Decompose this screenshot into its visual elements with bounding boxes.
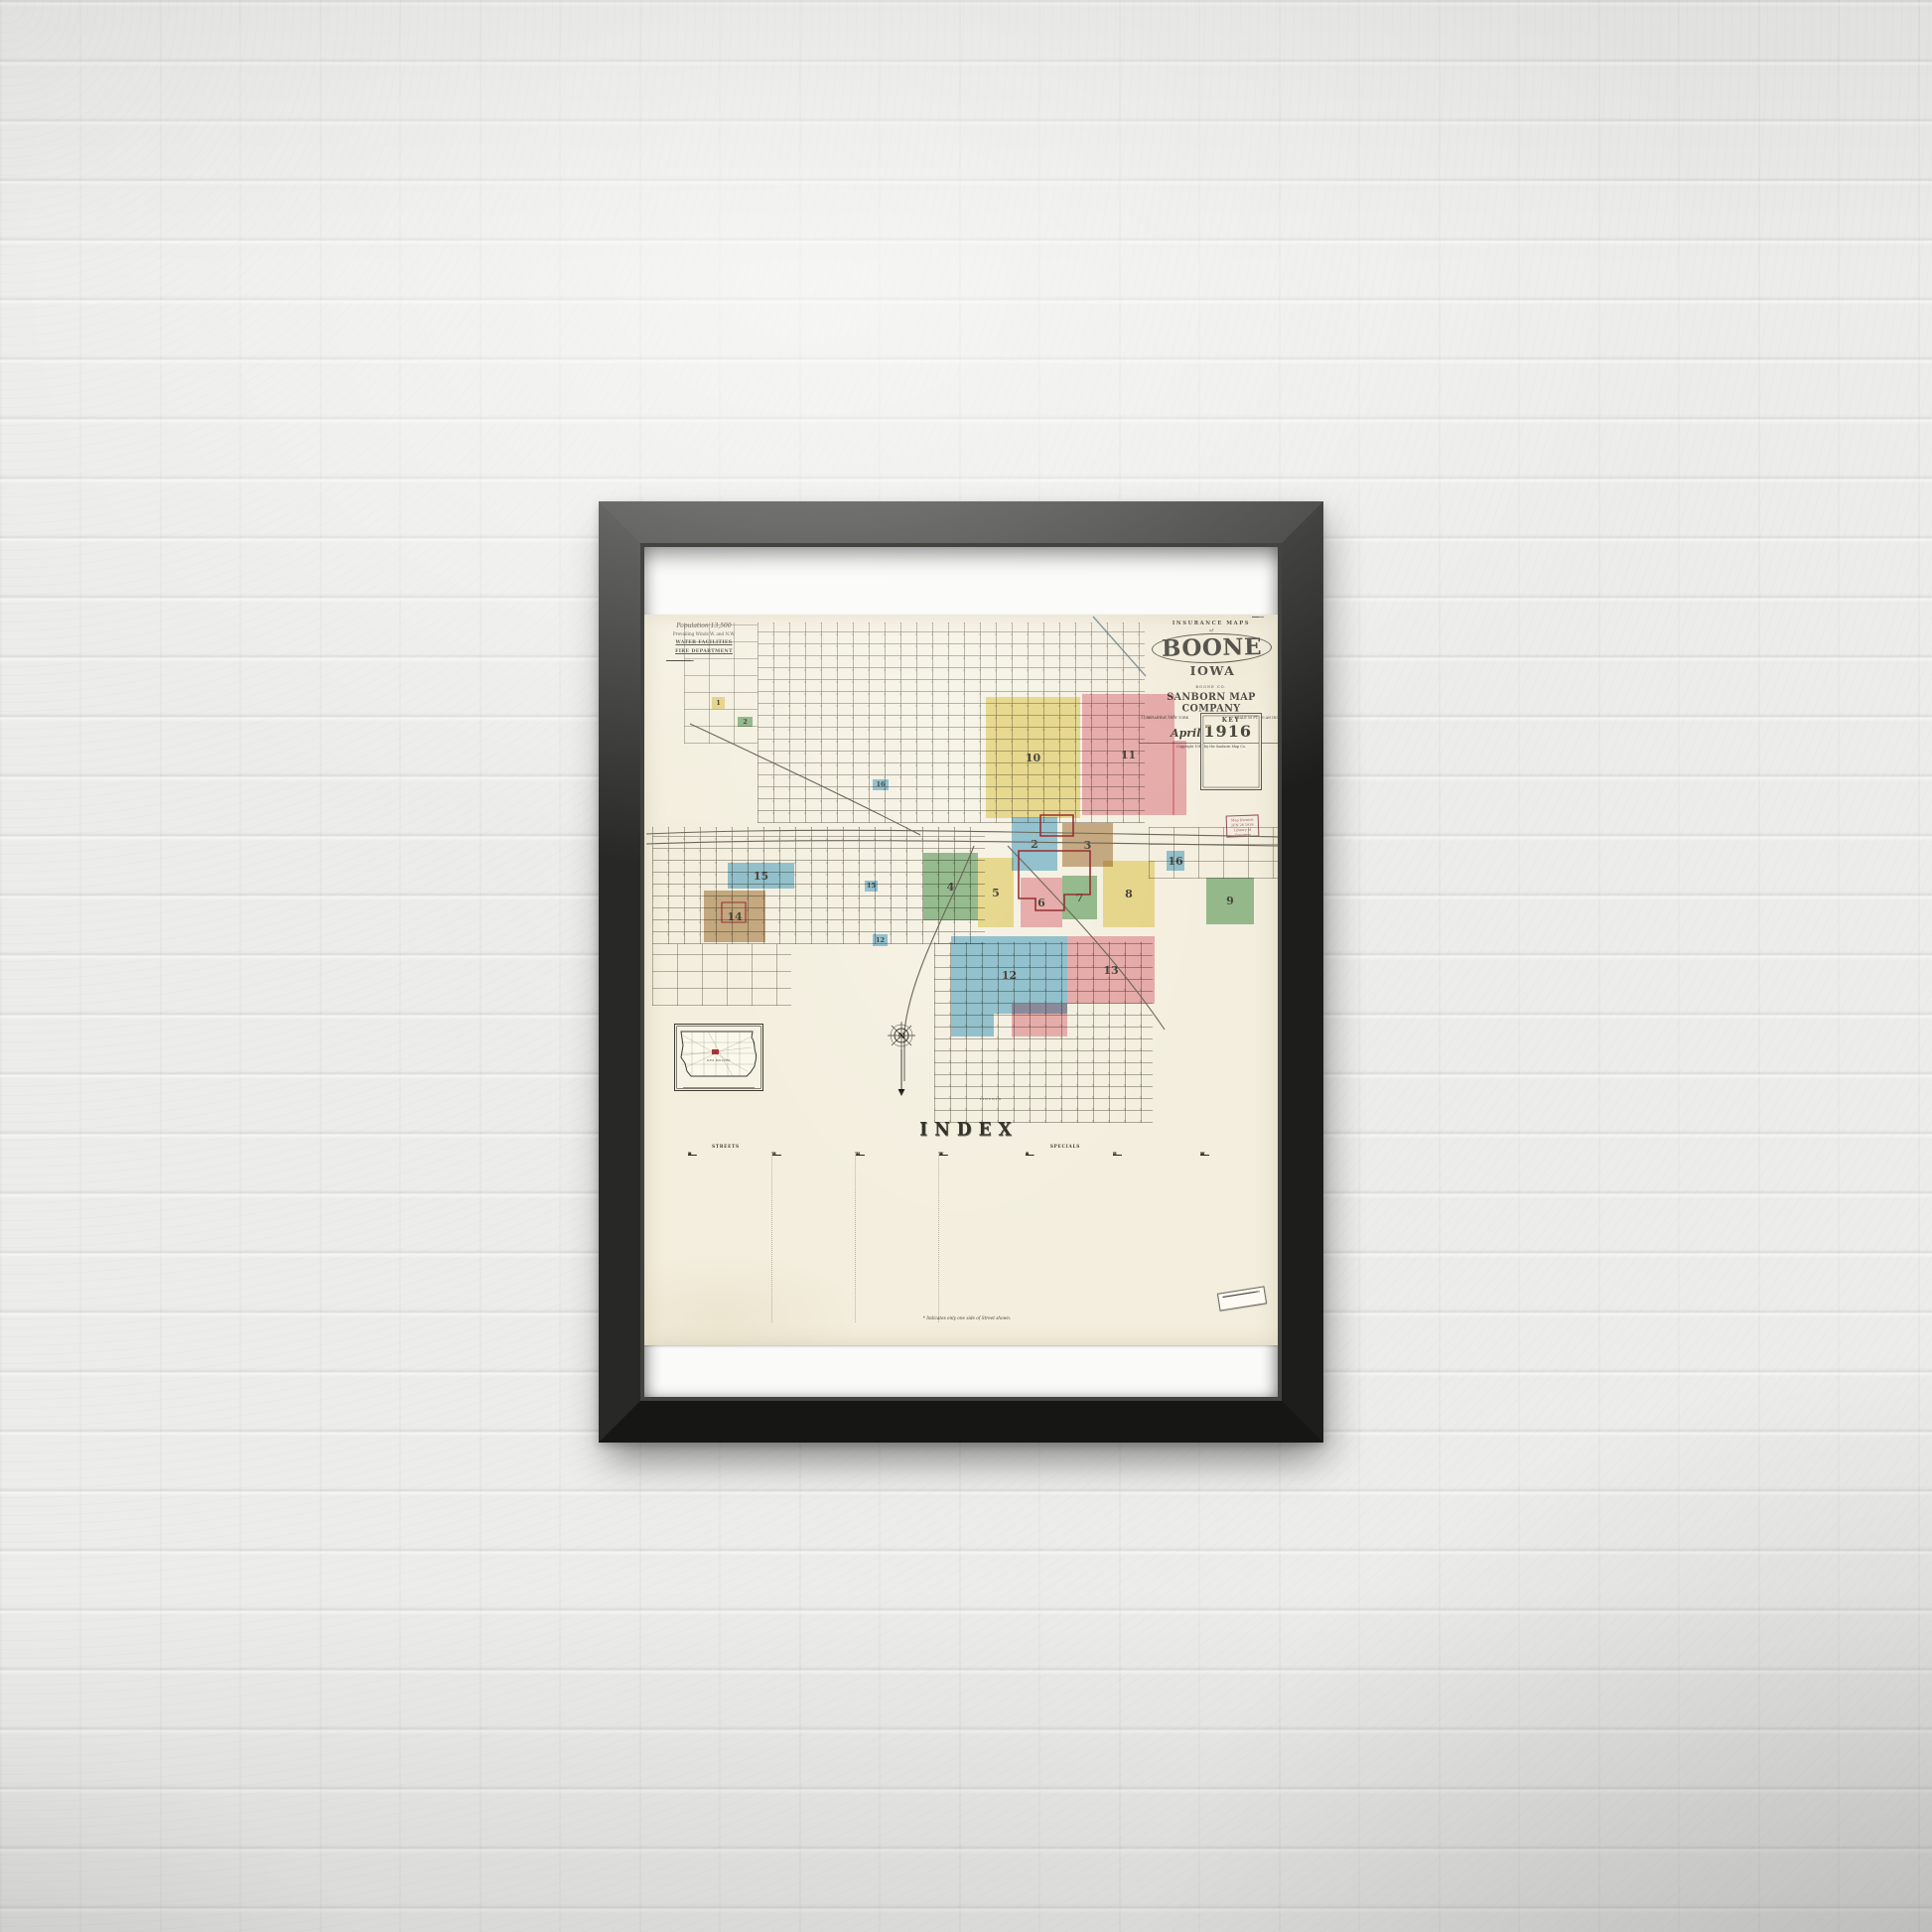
district-block: 11 [1082,694,1174,815]
district-number: 13 [1103,965,1118,976]
district-block: 10 [986,697,1080,818]
district-number: 2 [743,719,748,726]
district-number: 2 [1031,839,1038,850]
district-block: 4 [923,853,978,920]
district-block: 8 [1103,861,1155,927]
district-number: 16 [876,781,885,788]
district-block: 2 [1012,817,1057,871]
district-block: 13 [1067,936,1155,1004]
district-number: 4 [947,882,955,893]
index-column: EFGH [771,1152,847,1322]
district-block: 16 [1167,851,1184,871]
mat: 101123456789121314151612161512 [644,547,1278,1397]
index-column: ABCD [688,1152,763,1322]
district-number: 9 [1226,896,1234,906]
district-block: 2 [738,717,753,727]
index-column: ABCE [1026,1152,1105,1322]
district-block: 1 [712,697,725,709]
index-column: FGHL [1113,1152,1192,1322]
district-number: 11 [1121,750,1136,760]
district-block: 15 [728,863,794,889]
index-column: JKLM [855,1152,930,1322]
district-block: 14 [704,891,765,942]
district-block: 12 [951,936,1067,1014]
district-number: 5 [992,888,1000,898]
district-number: 3 [1084,840,1092,851]
district-block [1173,741,1186,815]
index-footnote: * Indicates only one side of Street show… [823,1315,1111,1320]
district-number: 16 [1168,856,1182,867]
picture-frame: 101123456789121314151612161512 [599,501,1323,1443]
district-block: 12 [873,934,888,946]
district-number: 15 [867,883,876,890]
district-number: 12 [876,937,885,944]
district-number: 6 [1037,897,1045,908]
district-block: 9 [1206,878,1254,924]
slip-text [1222,1291,1260,1297]
district-number: 15 [754,871,768,882]
district-number: 8 [1125,889,1133,899]
district-number: 1 [716,700,721,707]
district-block: 16 [873,779,889,790]
framed-map-photo: 101123456789121314151612161512 [0,0,1932,1932]
district-block: 15 [865,881,878,892]
district-block: 6 [1021,878,1062,927]
district-number: 14 [727,911,742,922]
district-block: 7 [1062,876,1097,919]
map-sheet: 101123456789121314151612161512 [644,615,1278,1345]
district-block [951,1014,994,1036]
district-number: 12 [1002,970,1017,981]
district-block [1012,1004,1067,1036]
district-block: 5 [978,858,1014,927]
district-number: 7 [1076,893,1084,903]
district-number: 10 [1026,753,1040,763]
index-column: NPSW [938,1152,1014,1322]
